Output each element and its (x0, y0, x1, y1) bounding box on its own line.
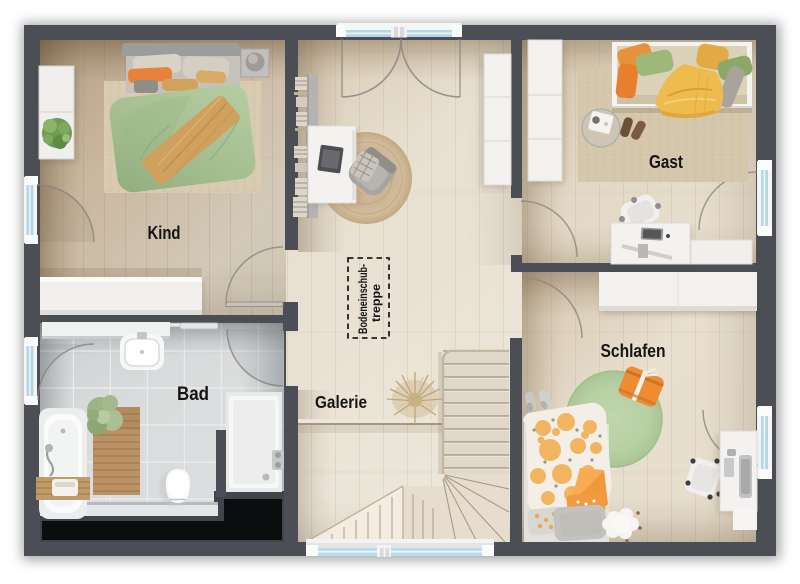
svg-text:Bad: Bad (177, 384, 209, 405)
svg-text:treppe: treppe (369, 284, 383, 322)
svg-text:Schlafen: Schlafen (601, 341, 666, 361)
svg-text:Bodeneinschub-: Bodeneinschub- (356, 264, 370, 334)
svg-text:Kind: Kind (148, 222, 181, 243)
svg-text:Galerie: Galerie (315, 392, 367, 412)
svg-text:Gast: Gast (649, 151, 683, 172)
